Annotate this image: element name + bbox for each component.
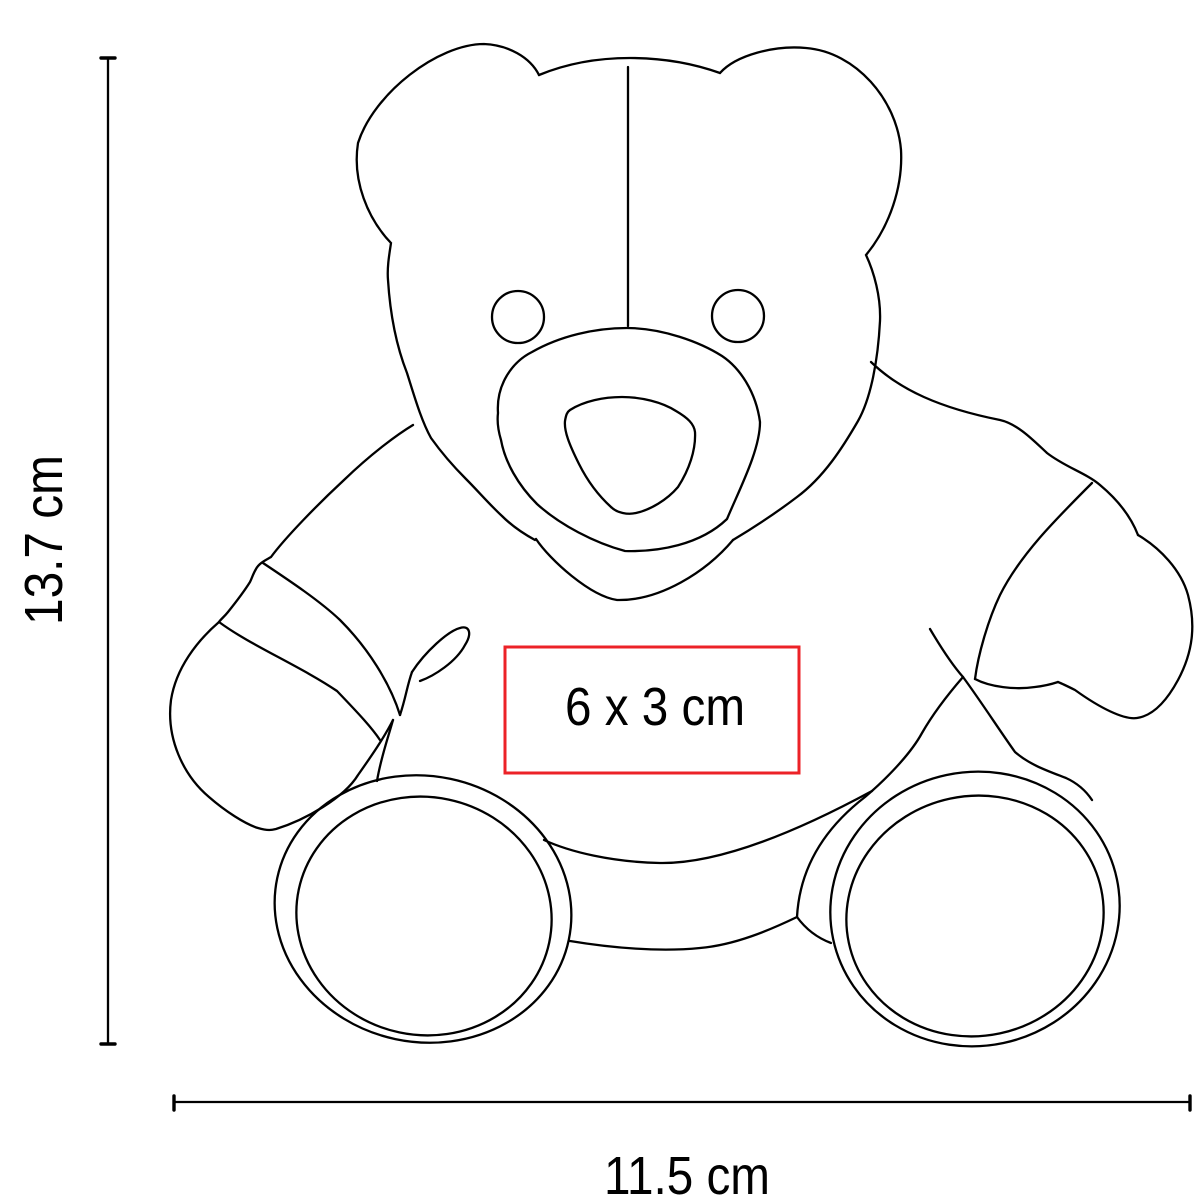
svg-text:11.5 cm: 11.5 cm [604, 1146, 770, 1200]
svg-text:6 x 3 cm: 6 x 3 cm [565, 677, 745, 737]
svg-text:13.7 cm: 13.7 cm [14, 455, 74, 625]
